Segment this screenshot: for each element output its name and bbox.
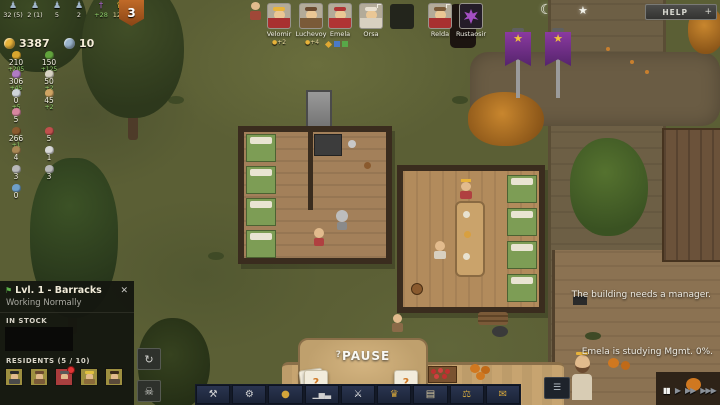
toolbar-production-button[interactable]: ⚙ [232, 385, 266, 404]
knight-body [337, 222, 347, 230]
gem-icon [325, 41, 332, 48]
king-walking-character[interactable] [565, 352, 599, 405]
bunk-bed [246, 230, 276, 258]
interior-wall [308, 132, 313, 210]
walking-character-body [392, 323, 403, 332]
resource-ham[interactable]: 5 [34, 127, 64, 143]
villager-character[interactable] [314, 228, 324, 238]
purple-banner: ★ [543, 28, 573, 100]
letter-icon: ✉ [499, 389, 507, 400]
bunk-bed [246, 134, 276, 162]
plate [464, 231, 471, 238]
chart-icon: ▁▅▃ [313, 390, 331, 399]
book-icon: ▤ [426, 389, 435, 400]
pumpkin [608, 358, 619, 368]
swords-icon: ⚔ [354, 389, 363, 400]
villager-body [314, 238, 324, 246]
warriors-icon: ♟ [45, 1, 69, 11]
fastest-button[interactable]: ▶▶▶ [700, 386, 715, 395]
monster-icon [464, 9, 479, 24]
plate [463, 211, 470, 218]
grass-tuft [585, 332, 601, 340]
king-body [460, 191, 472, 199]
stove [314, 134, 342, 156]
toolbar-nobility-button[interactable]: ♛ [377, 385, 411, 404]
velomir-buff: ●+2 [272, 39, 286, 46]
rotate-icon: ↻ [144, 353, 153, 366]
in-stock-label: IN STOCK [6, 317, 134, 325]
resident-thumb[interactable] [30, 368, 48, 386]
money-bag-icon: ● [281, 389, 290, 400]
white-flag-icon [377, 3, 383, 8]
toolbar-build-button[interactable]: ⚒ [196, 385, 230, 404]
portrait-velomir[interactable] [267, 3, 291, 29]
banner-star-icon: ★ [553, 32, 563, 45]
main-toolbar: ⚒ ⚙ ● ▁▅▃ ⚔ ♛ ▤ ⚖ ✉ [195, 384, 521, 405]
gold-coin-icon [4, 38, 15, 49]
residents-label: RESIDENTS (5 / 10) [6, 357, 134, 365]
notification-study[interactable]: Emela is studying Mgmt. 0%. [582, 347, 713, 357]
portrait-empty-slot [390, 4, 414, 29]
toolbar-statistics-button[interactable]: ▁▅▃ [305, 385, 339, 404]
star-icon: ★ [578, 4, 588, 17]
diner-character[interactable] [435, 241, 445, 251]
pot [348, 140, 356, 148]
toolbar-letters-button[interactable]: ✉ [486, 385, 520, 404]
study-icon [342, 41, 348, 47]
barrel [411, 283, 423, 295]
crown-icon [273, 7, 285, 11]
toolbar-laws-button[interactable]: ⚖ [450, 385, 484, 404]
apple-crate [428, 366, 457, 383]
grass-tuft [208, 252, 224, 260]
notification-manager[interactable]: The building needs a manager. [572, 290, 711, 300]
bunk-bed [246, 198, 276, 226]
moon-icon: ☾ [540, 2, 553, 18]
book-icon [334, 41, 340, 47]
peasants-icon: ♟ [1, 1, 25, 11]
hood-icon [365, 7, 377, 11]
game-viewport[interactable]: ★ ★ ☾ ★ ♟ 32 (5) ♟ 2 (1) ♟ 5 ♟ 2 † +28 ♛… [0, 0, 720, 405]
flower-dot [606, 47, 610, 51]
rotate-button[interactable]: ↻ [137, 348, 161, 370]
flower-dot [630, 60, 634, 64]
banner-star-icon: ★ [513, 32, 523, 45]
king-character[interactable] [461, 182, 471, 191]
bed [507, 241, 537, 269]
scales-icon: ⚖ [462, 389, 471, 400]
skull-icon: ☠ [144, 385, 154, 398]
hammer-icon: ⚒ [209, 389, 218, 400]
pause-button[interactable]: ▮▮ [663, 386, 670, 395]
stat-peasants[interactable]: ♟ 32 (5) [1, 1, 25, 19]
log-pile [478, 312, 508, 325]
diner-body [434, 251, 446, 259]
hat-icon [434, 7, 446, 11]
tree [570, 138, 648, 236]
flower-dot [645, 70, 649, 74]
purple-banner: ★ [503, 28, 533, 100]
resource-fish[interactable]: 0 [1, 184, 31, 200]
toolbar-military-button[interactable]: ⚔ [341, 385, 375, 404]
play-button[interactable]: ▶ [675, 386, 680, 395]
autumn-bush [468, 92, 544, 146]
bed [507, 208, 537, 236]
fast-button[interactable]: ▶▶ [685, 386, 695, 395]
hood-icon [334, 7, 346, 11]
pumpkin [621, 361, 630, 370]
gear-icon: ⚙ [245, 389, 254, 400]
portrait-emela[interactable] [328, 3, 352, 29]
residents-row [5, 368, 134, 386]
resource-axes[interactable]: 3 [1, 165, 31, 181]
prisoners-icon: ♟ [67, 1, 91, 11]
resident-thumb-alert[interactable] [55, 368, 73, 386]
world-character-small[interactable] [248, 2, 263, 22]
resource-hammers[interactable]: 3 [34, 165, 64, 181]
bed [507, 175, 537, 203]
building-flag-icon: ⚑ [5, 286, 12, 295]
stat-prisoners[interactable]: ♟ 2 [67, 1, 91, 19]
task-list-button[interactable]: ☰ [544, 377, 570, 399]
hair-icon [305, 7, 317, 11]
wood-storage [662, 128, 720, 262]
toolbar-economy-button[interactable]: ● [268, 385, 302, 404]
stat-nobles[interactable]: ♟ 2 (1) [23, 1, 47, 19]
resident-thumb[interactable] [80, 368, 98, 386]
help-button[interactable]: HELP + [645, 4, 717, 20]
resource-sacks[interactable]: 4 [1, 146, 31, 162]
knight-character[interactable] [336, 210, 348, 222]
building-panel: ⚑ Lvl. 1 - Barracks ✕ Working Normally I… [0, 281, 134, 405]
list-icon: ☰ [553, 383, 561, 393]
portrait-name: Orsa [349, 30, 393, 38]
toolbar-knowledge-button[interactable]: ▤ [413, 385, 447, 404]
gold-counter[interactable]: 3387 [4, 37, 50, 50]
close-icon[interactable]: ✕ [119, 286, 129, 296]
white-flag-icon [446, 3, 452, 8]
portrait-name: Rustaosir [449, 30, 493, 38]
keg [364, 162, 371, 169]
portrait-luchevoy[interactable] [299, 3, 323, 29]
stock-box [5, 327, 73, 351]
stat-warriors[interactable]: ♟ 5 [45, 1, 69, 19]
resource-bread[interactable]: 45+2 [34, 89, 64, 111]
resident-thumb[interactable] [5, 368, 23, 386]
speed-controls: ▮▮ ▶ ▶▶ ▶▶▶ [663, 386, 716, 395]
fire-pit [492, 326, 508, 337]
silver-coin-icon [64, 38, 75, 49]
grass-tuft [452, 96, 468, 104]
bunk-bed [246, 166, 276, 194]
nobles-icon: ♟ [23, 1, 47, 11]
panel-title: Lvl. 1 - Barracks [15, 285, 119, 296]
portrait-relda[interactable] [428, 3, 452, 29]
resident-thumb[interactable] [105, 368, 123, 386]
bed [507, 274, 537, 302]
dining-table [455, 201, 485, 277]
resource-meat[interactable]: 5 [1, 108, 31, 124]
dining-hall-building[interactable] [397, 165, 545, 313]
plus-icon: + [704, 7, 716, 17]
portrait-orsa[interactable] [359, 3, 383, 29]
luchevoy-buff: ●+4 [305, 39, 319, 46]
plate [463, 253, 470, 260]
destroy-button[interactable]: ☠ [137, 380, 161, 402]
silver-counter[interactable]: 10 [64, 37, 94, 50]
resource-bones[interactable]: 1 [34, 146, 64, 162]
pumpkin [476, 372, 485, 380]
portrait-rustaosir[interactable] [459, 3, 483, 29]
crown-icon: ♛ [390, 389, 399, 400]
walking-character[interactable] [393, 314, 402, 323]
panel-status: Working Normally [0, 298, 134, 313]
pause-indicator: ?PAUSE [300, 349, 426, 363]
barracks-building[interactable] [238, 126, 392, 264]
